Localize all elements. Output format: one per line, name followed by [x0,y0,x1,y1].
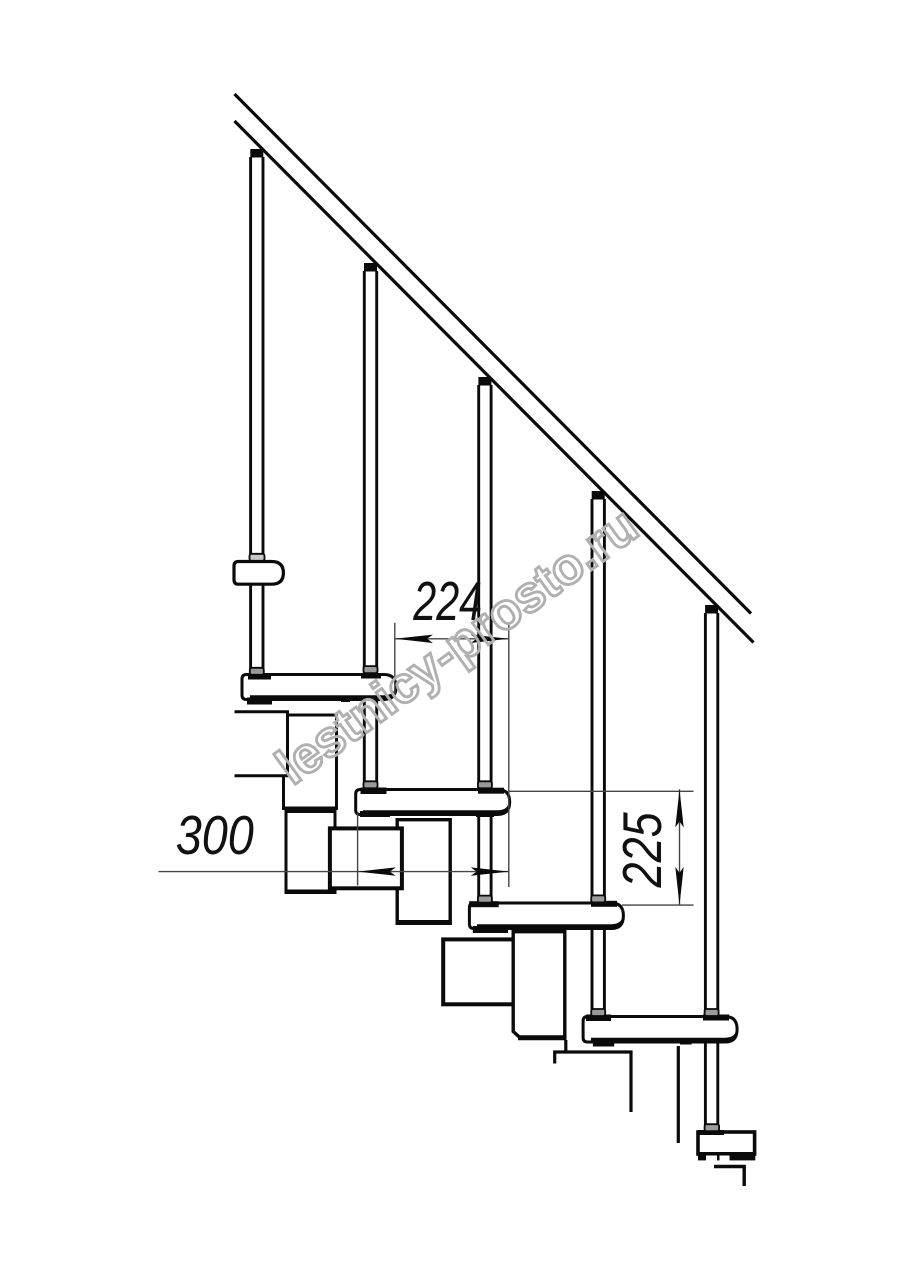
svg-text:300: 300 [176,804,254,865]
svg-text:225: 225 [611,811,673,888]
